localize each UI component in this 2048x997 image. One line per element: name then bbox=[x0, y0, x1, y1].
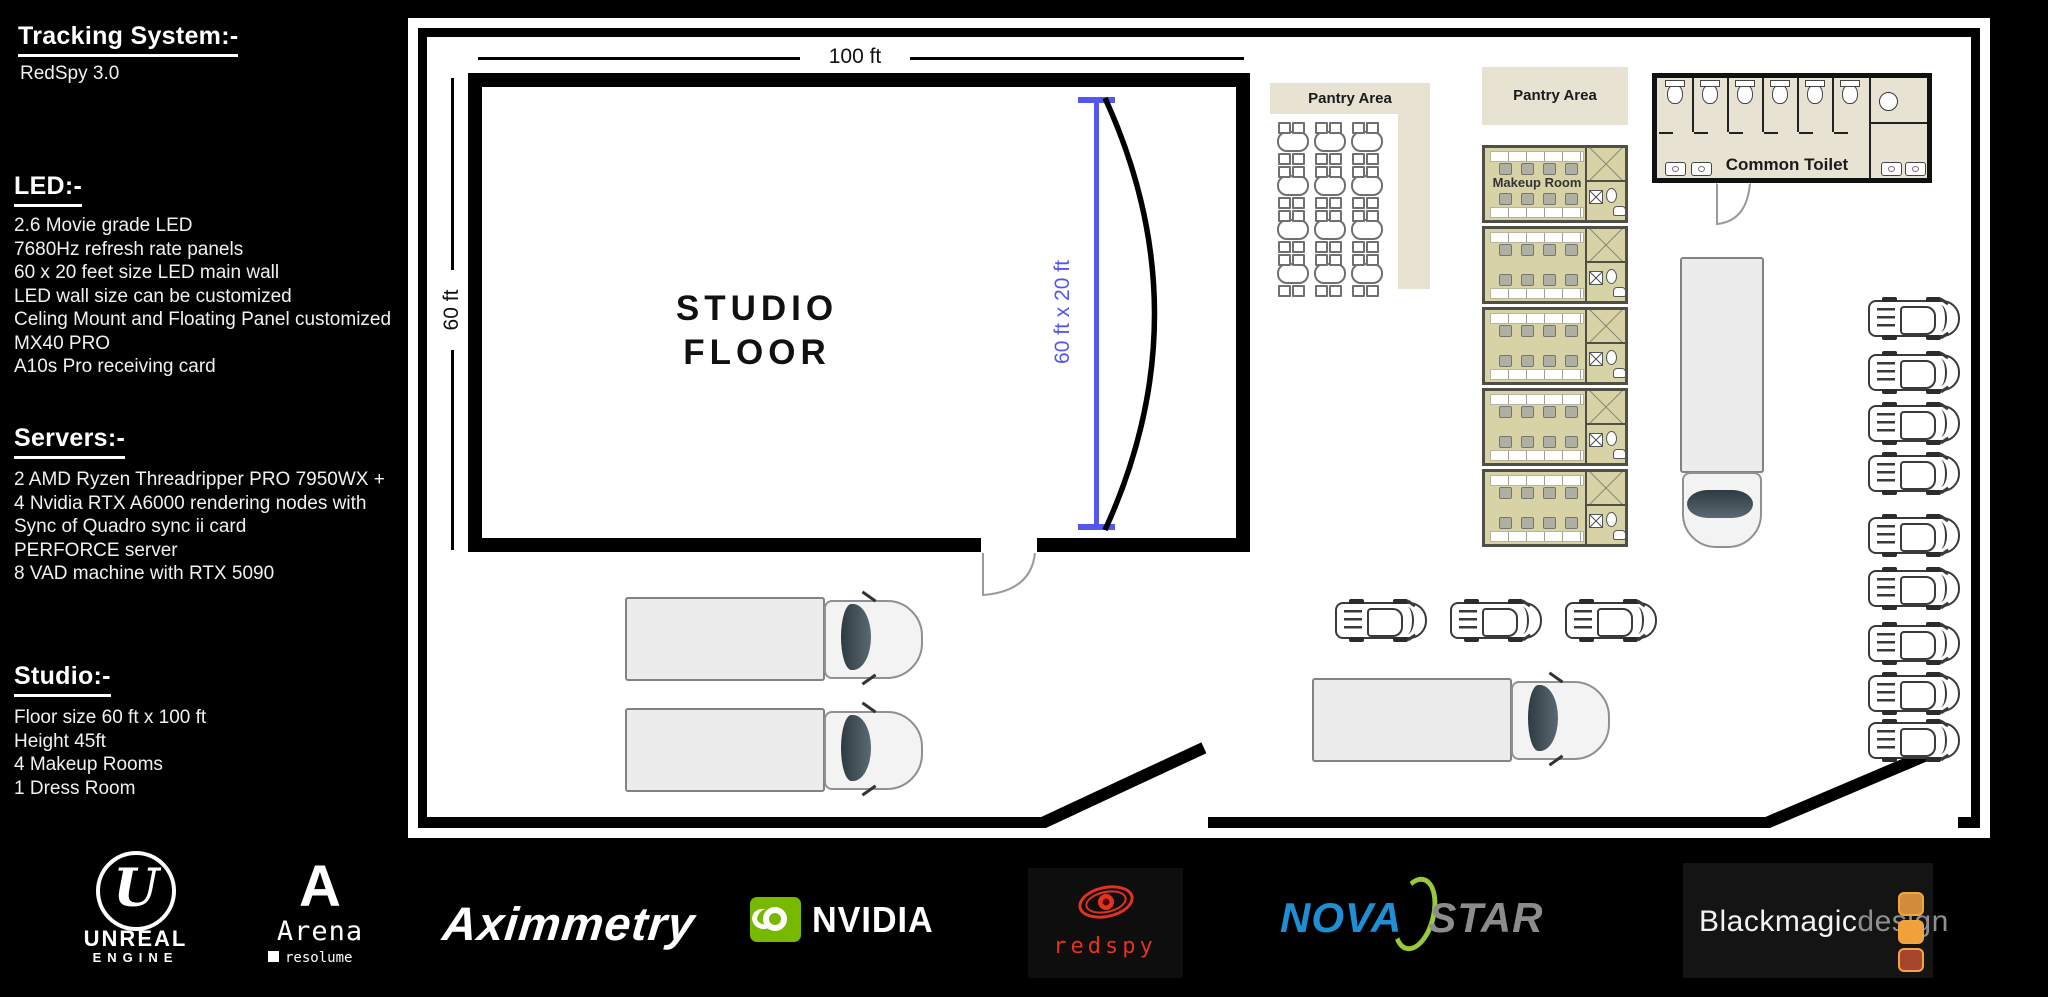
makeup-counter bbox=[1490, 369, 1584, 380]
car-windshield bbox=[1934, 575, 1947, 602]
spec-line: PERFORCE server bbox=[14, 539, 385, 563]
toilet-bowl-icon bbox=[1667, 84, 1683, 104]
car-trunk-lines bbox=[1877, 413, 1895, 434]
pantry-table-top bbox=[1277, 263, 1309, 284]
truck-cargo bbox=[625, 708, 825, 792]
truck-cab bbox=[824, 600, 923, 679]
module-bath-column bbox=[1585, 472, 1625, 544]
floor-plan: STUDIO FLOOR 100 ft 60 ft 60 ft x 20 ft … bbox=[408, 18, 1990, 838]
pantry-table-top bbox=[1314, 175, 1346, 196]
makeup-chair bbox=[1565, 436, 1578, 448]
car-wheel bbox=[1882, 440, 1897, 445]
toilet-tank-icon bbox=[1700, 80, 1720, 87]
car-wheel bbox=[1882, 719, 1897, 724]
car-windshield bbox=[1934, 305, 1947, 332]
pantry-chair bbox=[1278, 166, 1291, 178]
module-closet bbox=[1587, 229, 1625, 263]
stall-divider bbox=[1727, 78, 1729, 132]
car-wheel bbox=[1349, 599, 1364, 604]
toilet-bowl-icon bbox=[1807, 84, 1823, 104]
studio-floorplan-page: Tracking System:- RedSpy 3.0 LED:- 2.6 M… bbox=[0, 0, 2048, 997]
car-wheel bbox=[1349, 637, 1364, 642]
pantry-table bbox=[1348, 252, 1385, 296]
car-trunk-lines bbox=[1459, 610, 1477, 631]
car-wheel bbox=[1464, 637, 1479, 642]
makeup-room-label: Makeup Room bbox=[1487, 175, 1587, 190]
wall-segment bbox=[1208, 817, 1770, 828]
pantry-chair bbox=[1278, 285, 1291, 297]
makeup-chair bbox=[1499, 436, 1512, 448]
car-wheel bbox=[1623, 637, 1638, 642]
car-roof bbox=[1900, 461, 1936, 490]
toilet-tank-icon bbox=[1665, 80, 1685, 87]
sink-icon bbox=[1606, 188, 1617, 203]
makeup-chair bbox=[1565, 193, 1578, 205]
makeup-chair bbox=[1499, 487, 1512, 499]
pantry-chair bbox=[1292, 285, 1305, 297]
car-trunk-lines bbox=[1877, 683, 1895, 704]
car-trunk-lines bbox=[1344, 610, 1362, 631]
car-wheel bbox=[1926, 719, 1941, 724]
car-wheel bbox=[1882, 757, 1897, 762]
car-windshield bbox=[1631, 607, 1644, 634]
stall-front-wall bbox=[1799, 132, 1813, 134]
makeup-chair bbox=[1521, 436, 1534, 448]
common-toilet: Common Toilet bbox=[1652, 73, 1932, 183]
toilet-wall bbox=[1869, 78, 1871, 178]
car-wheel bbox=[1926, 351, 1941, 356]
makeup-chair bbox=[1543, 355, 1556, 367]
car-roof bbox=[1900, 306, 1936, 335]
pantry-chair bbox=[1292, 166, 1305, 178]
makeup-chair bbox=[1521, 355, 1534, 367]
car-wheel bbox=[1882, 452, 1897, 457]
pantry-chair bbox=[1315, 254, 1328, 266]
stall-front-wall bbox=[1659, 132, 1673, 134]
pantry-table bbox=[1274, 120, 1311, 164]
car-wheel bbox=[1926, 440, 1941, 445]
pantry-chair bbox=[1352, 254, 1365, 266]
unreal-engine-text: ENGINE bbox=[48, 950, 223, 965]
car-wheel bbox=[1926, 297, 1941, 302]
makeup-chair bbox=[1499, 517, 1512, 529]
pantry-area-left-strip bbox=[1398, 114, 1430, 289]
pantry-table bbox=[1274, 252, 1311, 296]
spec-line: Sync of Quadro sync ii card bbox=[14, 515, 385, 539]
makeup-chair bbox=[1565, 244, 1578, 256]
pantry-table bbox=[1311, 120, 1348, 164]
truck-cab bbox=[824, 711, 923, 790]
spec-line: RedSpy 3.0 bbox=[20, 62, 119, 86]
car-wheel bbox=[1926, 660, 1941, 665]
sink-icon bbox=[1606, 350, 1617, 365]
pantry-chair bbox=[1292, 122, 1305, 134]
toilet-bowl-icon bbox=[1702, 84, 1718, 104]
redspy-logo-text: redspy bbox=[1040, 934, 1170, 959]
makeup-chair bbox=[1543, 406, 1556, 418]
module-closet bbox=[1587, 310, 1625, 344]
car-wheel bbox=[1882, 514, 1897, 519]
car-wheel bbox=[1926, 514, 1941, 519]
car-roof bbox=[1597, 608, 1633, 637]
car-wheel bbox=[1926, 567, 1941, 572]
spec-line: 60 x 20 feet size LED main wall bbox=[14, 261, 391, 285]
truck-vertical bbox=[1676, 257, 1766, 563]
toilet-sink bbox=[1881, 162, 1902, 176]
car-wheel bbox=[1882, 567, 1897, 572]
unreal-logo-text: UNREAL bbox=[48, 926, 223, 952]
car-roof bbox=[1900, 631, 1936, 660]
redspy-logo-box: redspy bbox=[1028, 868, 1183, 978]
makeup-counter bbox=[1490, 207, 1584, 218]
car-wheel bbox=[1623, 599, 1638, 604]
tracking-system-title: Tracking System:- bbox=[18, 22, 238, 57]
makeup-chair bbox=[1543, 517, 1556, 529]
truck-cab bbox=[1511, 681, 1610, 760]
novastar-nova-text: NOVA bbox=[1280, 894, 1402, 941]
makeup-chair bbox=[1543, 436, 1556, 448]
car-wheel bbox=[1882, 297, 1897, 302]
parked-car bbox=[1868, 352, 1960, 393]
makeup-chair bbox=[1499, 163, 1512, 175]
car-roof bbox=[1900, 523, 1936, 552]
truck-windshield bbox=[1687, 490, 1753, 518]
pantry-table-top bbox=[1314, 219, 1346, 240]
car-windshield bbox=[1934, 410, 1947, 437]
resolume-logo-text: resolume bbox=[268, 950, 388, 966]
car-wheel bbox=[1393, 599, 1408, 604]
car-roof bbox=[1367, 608, 1403, 637]
studio-title: Studio:- bbox=[14, 662, 111, 697]
pantry-chair bbox=[1366, 285, 1379, 297]
makeup-counter bbox=[1490, 394, 1584, 405]
unreal-engine-logo-icon: U bbox=[96, 851, 176, 931]
stall-front-wall bbox=[1764, 132, 1778, 134]
spec-line: 4 Nvidia RTX A6000 rendering nodes with bbox=[14, 492, 385, 516]
makeup-chair bbox=[1499, 274, 1512, 286]
parked-car bbox=[1868, 720, 1960, 761]
novastar-logo-text: NOVASTAR bbox=[1280, 894, 1543, 942]
truck-cargo bbox=[1312, 678, 1512, 762]
module-closet bbox=[1587, 472, 1625, 506]
makeup-chair bbox=[1521, 517, 1534, 529]
spec-line: A10s Pro receiving card bbox=[14, 355, 391, 379]
stall-front-wall bbox=[1834, 132, 1848, 134]
car-trunk-lines bbox=[1877, 578, 1895, 599]
left-dimension-label: 60 ft bbox=[440, 270, 464, 350]
makeup-chair bbox=[1565, 406, 1578, 418]
car-windshield bbox=[1934, 727, 1947, 754]
pantry-table-top bbox=[1314, 263, 1346, 284]
makeup-chair bbox=[1565, 274, 1578, 286]
parked-car bbox=[1868, 673, 1960, 714]
blackmagic-square-icon bbox=[1898, 892, 1924, 916]
dressing-module bbox=[1482, 307, 1628, 385]
car-trunk-lines bbox=[1877, 525, 1895, 546]
dressing-module bbox=[1482, 469, 1628, 547]
stall-divider bbox=[1692, 78, 1694, 132]
spec-line: 7680Hz refresh rate panels bbox=[14, 238, 391, 262]
makeup-chair bbox=[1521, 193, 1534, 205]
pantry-table-top bbox=[1351, 175, 1383, 196]
makeup-counter bbox=[1490, 531, 1584, 542]
makeup-chair bbox=[1565, 355, 1578, 367]
top-dimension-label: 100 ft bbox=[800, 45, 910, 69]
pantry-chair bbox=[1315, 285, 1328, 297]
car-wheel bbox=[1882, 660, 1897, 665]
car-wheel bbox=[1882, 351, 1897, 356]
toilet-bowl-icon bbox=[1842, 84, 1858, 104]
pantry-chair bbox=[1352, 166, 1365, 178]
pantry-table bbox=[1311, 252, 1348, 296]
makeup-chair bbox=[1543, 244, 1556, 256]
makeup-chair bbox=[1543, 325, 1556, 337]
pantry-chair bbox=[1366, 166, 1379, 178]
arena-logo-text: Arena bbox=[260, 916, 380, 947]
toilet-bowl-icon bbox=[1772, 84, 1788, 104]
pantry-table-top bbox=[1277, 131, 1309, 152]
blackmagic-square-icon bbox=[1898, 920, 1924, 944]
toilet-sink bbox=[1905, 162, 1926, 176]
blackmagic-logo-box: Blackmagicdesign bbox=[1683, 863, 1933, 978]
toilet-round-sink bbox=[1879, 92, 1898, 111]
car-windshield bbox=[1934, 359, 1947, 386]
parked-car bbox=[1868, 453, 1960, 494]
makeup-chair bbox=[1521, 244, 1534, 256]
car-trunk-lines bbox=[1877, 308, 1895, 329]
truck-middle bbox=[1312, 676, 1608, 762]
makeup-chair bbox=[1543, 487, 1556, 499]
arena-logo-icon: A bbox=[260, 853, 380, 920]
toilet-tank-icon bbox=[1770, 80, 1790, 87]
pantry-chair bbox=[1292, 254, 1305, 266]
spec-line: Height 45ft bbox=[14, 730, 206, 754]
makeup-chair bbox=[1565, 163, 1578, 175]
car-wheel bbox=[1882, 622, 1897, 627]
car-trunk-lines bbox=[1574, 610, 1592, 631]
led-wall-dimension-label: 60 ft x 20 ft bbox=[1051, 227, 1075, 397]
car-wheel bbox=[1926, 335, 1941, 340]
makeup-counter bbox=[1490, 313, 1584, 324]
parked-car bbox=[1565, 600, 1657, 641]
studio-floor-room: STUDIO FLOOR bbox=[468, 73, 1250, 552]
pantry-chair bbox=[1278, 122, 1291, 134]
car-wheel bbox=[1882, 710, 1897, 715]
makeup-chair bbox=[1521, 325, 1534, 337]
pantry-table-top bbox=[1351, 131, 1383, 152]
pantry-area-left-label: Pantry Area bbox=[1270, 83, 1430, 114]
toilet-icon bbox=[1613, 449, 1626, 459]
spec-line: 2.6 Movie grade LED bbox=[14, 214, 391, 238]
stall-front-wall bbox=[1694, 132, 1708, 134]
pantry-chair bbox=[1315, 210, 1328, 222]
spec-line: Floor size 60 ft x 100 ft bbox=[14, 706, 206, 730]
pantry-chair bbox=[1329, 285, 1342, 297]
toilet-bowl-icon bbox=[1737, 84, 1753, 104]
pantry-chair bbox=[1329, 166, 1342, 178]
makeup-chair bbox=[1521, 274, 1534, 286]
car-wheel bbox=[1882, 389, 1897, 394]
servers-lines: 2 AMD Ryzen Threadripper PRO 7950WX +4 N… bbox=[14, 468, 385, 586]
toilet-sink bbox=[1665, 162, 1686, 176]
pantry-table bbox=[1311, 208, 1348, 252]
makeup-chair bbox=[1543, 163, 1556, 175]
spec-line: 4 Makeup Rooms bbox=[14, 753, 206, 777]
blackmagic-square-icon bbox=[1898, 948, 1924, 972]
shower-box bbox=[1589, 271, 1603, 285]
car-roof bbox=[1900, 681, 1936, 710]
makeup-chair bbox=[1499, 325, 1512, 337]
makeup-chair bbox=[1565, 325, 1578, 337]
parked-car bbox=[1335, 600, 1427, 641]
parked-car bbox=[1450, 600, 1542, 641]
pantry-table bbox=[1311, 164, 1348, 208]
truck-bottom-left-1 bbox=[625, 595, 921, 681]
pantry-chair bbox=[1329, 254, 1342, 266]
makeup-chair bbox=[1499, 244, 1512, 256]
parked-car bbox=[1868, 403, 1960, 444]
module-bath-column bbox=[1585, 148, 1625, 220]
car-windshield bbox=[1934, 522, 1947, 549]
pantry-table bbox=[1348, 120, 1385, 164]
car-trunk-lines bbox=[1877, 463, 1895, 484]
pantry-chair bbox=[1366, 210, 1379, 222]
makeup-room-module: Makeup Room bbox=[1482, 145, 1628, 223]
stall-front-wall bbox=[1729, 132, 1743, 134]
toilet-icon bbox=[1613, 206, 1626, 216]
car-wheel bbox=[1926, 402, 1941, 407]
makeup-chair bbox=[1499, 193, 1512, 205]
stall-divider bbox=[1832, 78, 1834, 132]
shower-box bbox=[1589, 514, 1603, 528]
parked-car bbox=[1868, 623, 1960, 664]
redspy-eye-iris bbox=[1098, 894, 1114, 910]
led-lines: 2.6 Movie grade LED7680Hz refresh rate p… bbox=[14, 214, 391, 379]
makeup-counter bbox=[1490, 151, 1584, 162]
module-closet bbox=[1587, 391, 1625, 425]
sink-icon bbox=[1606, 431, 1617, 446]
pantry-table-top bbox=[1351, 219, 1383, 240]
parked-car bbox=[1868, 298, 1960, 339]
shower-box bbox=[1589, 433, 1603, 447]
spec-line: MX40 PRO bbox=[14, 332, 391, 356]
studio-door-opening bbox=[981, 536, 1037, 553]
car-trunk-lines bbox=[1877, 633, 1895, 654]
pantry-chair bbox=[1352, 285, 1365, 297]
spec-line: 1 Dress Room bbox=[14, 777, 206, 801]
car-wheel bbox=[1926, 552, 1941, 557]
pantry-chair bbox=[1278, 254, 1291, 266]
pantry-area-right-label: Pantry Area bbox=[1482, 67, 1628, 125]
makeup-counter bbox=[1490, 288, 1584, 299]
pantry-table-top bbox=[1277, 175, 1309, 196]
servers-title: Servers:- bbox=[14, 424, 125, 459]
car-wheel bbox=[1464, 599, 1479, 604]
pantry-table-top bbox=[1277, 219, 1309, 240]
pantry-tables bbox=[1274, 120, 1386, 298]
car-trunk-lines bbox=[1877, 730, 1895, 751]
car-wheel bbox=[1926, 757, 1941, 762]
makeup-chair bbox=[1521, 487, 1534, 499]
pantry-chair bbox=[1278, 210, 1291, 222]
car-wheel bbox=[1882, 402, 1897, 407]
makeup-chair bbox=[1565, 487, 1578, 499]
toilet-tank-icon bbox=[1805, 80, 1825, 87]
makeup-counter bbox=[1490, 450, 1584, 461]
car-wheel bbox=[1579, 599, 1594, 604]
dressing-module bbox=[1482, 226, 1628, 304]
pantry-chair bbox=[1366, 122, 1379, 134]
module-bath-column bbox=[1585, 391, 1625, 463]
stall-divider bbox=[1797, 78, 1799, 132]
makeup-chair bbox=[1543, 274, 1556, 286]
truck-cargo bbox=[625, 597, 825, 681]
spec-line: 2 AMD Ryzen Threadripper PRO 7950WX + bbox=[14, 468, 385, 492]
aximmetry-logo-text: Aximmetry bbox=[440, 896, 698, 951]
car-wheel bbox=[1882, 605, 1897, 610]
toilet-tank-icon bbox=[1840, 80, 1860, 87]
toilet-icon bbox=[1613, 287, 1626, 297]
resolume-square-icon bbox=[268, 951, 279, 962]
car-wheel bbox=[1926, 672, 1941, 677]
car-roof bbox=[1900, 728, 1936, 757]
car-wheel bbox=[1882, 335, 1897, 340]
pantry-table-top bbox=[1314, 131, 1346, 152]
pantry-table bbox=[1274, 208, 1311, 252]
wall-segment bbox=[418, 817, 1046, 828]
toilet-icon bbox=[1613, 368, 1626, 378]
car-wheel bbox=[1926, 710, 1941, 715]
car-trunk-lines bbox=[1877, 362, 1895, 383]
novastar-star-text: STAR bbox=[1428, 894, 1543, 941]
makeup-chair bbox=[1565, 517, 1578, 529]
redspy-eye-icon bbox=[1078, 882, 1134, 922]
car-roof bbox=[1900, 360, 1936, 389]
car-wheel bbox=[1579, 637, 1594, 642]
led-wall-dimension-line bbox=[1094, 97, 1099, 530]
truck-bottom-left-2 bbox=[625, 706, 921, 792]
module-closet bbox=[1587, 148, 1625, 182]
common-toilet-label: Common Toilet bbox=[1697, 155, 1877, 175]
pantry-table bbox=[1348, 164, 1385, 208]
nvidia-logo-text: NVIDIA bbox=[812, 899, 934, 941]
pantry-table bbox=[1348, 208, 1385, 252]
makeup-chair bbox=[1521, 163, 1534, 175]
toilet-shelf bbox=[1871, 122, 1927, 124]
car-wheel bbox=[1926, 452, 1941, 457]
parked-car bbox=[1868, 515, 1960, 556]
car-roof bbox=[1900, 411, 1936, 440]
wall-segment bbox=[1958, 817, 1980, 828]
car-windshield bbox=[1934, 680, 1947, 707]
car-wheel bbox=[1882, 490, 1897, 495]
pantry-chair bbox=[1329, 210, 1342, 222]
pantry-chair bbox=[1329, 122, 1342, 134]
pantry-chair bbox=[1352, 122, 1365, 134]
car-wheel bbox=[1508, 637, 1523, 642]
parked-car bbox=[1868, 568, 1960, 609]
spec-line: Celing Mount and Floating Panel customiz… bbox=[14, 308, 391, 332]
studio-floor-label: STUDIO FLOOR bbox=[637, 287, 877, 375]
toilet-sink bbox=[1691, 162, 1712, 176]
nvidia-eye-icon bbox=[750, 897, 801, 942]
makeup-chair bbox=[1499, 406, 1512, 418]
car-windshield bbox=[1401, 607, 1414, 634]
car-wheel bbox=[1882, 672, 1897, 677]
studio-lines: Floor size 60 ft x 100 ftHeight 45ft4 Ma… bbox=[14, 706, 206, 800]
shower-box bbox=[1589, 190, 1603, 204]
pantry-chair bbox=[1292, 210, 1305, 222]
